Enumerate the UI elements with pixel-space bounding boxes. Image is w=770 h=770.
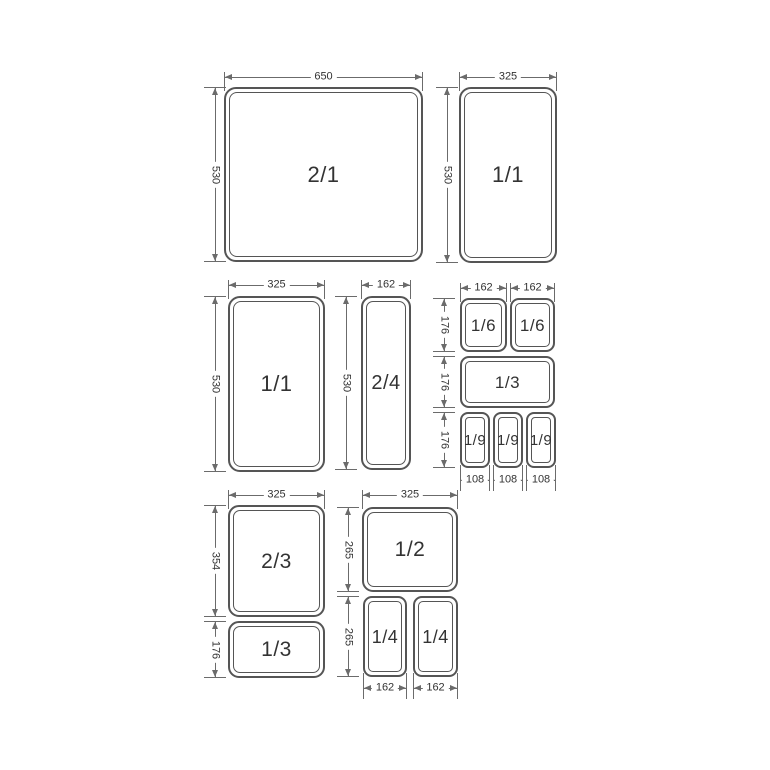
pan-size-label: 1/1 [492,164,524,186]
arrowhead-right-icon [549,74,556,80]
arrowhead-right-icon [403,282,410,288]
arrowhead-up-icon [212,506,218,513]
dimension-value: 176 [208,636,221,662]
pan-1-1-top: 1/1 [459,87,557,263]
arrowhead-left-icon [460,74,467,80]
pan-1-4-b: 1/4 [413,596,458,677]
pan-size-label: 1/3 [261,639,292,660]
dimension-value: 265 [341,623,354,649]
extension-tick [522,465,523,491]
arrowhead-up-icon [212,297,218,304]
arrowhead-up-icon [441,299,447,306]
dimension-value: 325 [263,278,289,291]
extension-tick [337,591,359,592]
extension-tick [335,469,357,470]
dimension-value: 108 [495,473,521,486]
arrowhead-left-icon [414,685,421,691]
pan-2-3: 2/3 [228,505,325,617]
arrowhead-left-icon [363,492,370,498]
pan-size-label: 1/1 [260,373,292,395]
pan-size-label: 1/9 [497,433,519,448]
dimension-value: 265 [341,536,354,562]
extension-tick [489,465,490,491]
dimension-value: 325 [495,70,521,83]
arrowhead-up-icon [441,357,447,364]
arrowhead-right-icon [317,282,324,288]
pan-size-label: 2/4 [371,373,400,393]
arrowhead-right-icon [415,74,422,80]
extension-tick [324,490,325,509]
arrowhead-right-icon [450,492,457,498]
pan-2-1: 2/1 [224,87,423,262]
pan-1-1-mid: 1/1 [228,296,325,472]
dimension-value: 176 [437,427,450,453]
pan-1-4-a: 1/4 [363,596,407,677]
pan-size-label: 2/1 [307,164,339,186]
extension-tick [204,677,226,678]
extension-tick [554,283,555,302]
dimension-value: 650 [310,70,336,83]
arrowhead-up-icon [444,88,450,95]
dimension-value: 530 [440,162,453,188]
pan-1-9-a: 1/9 [460,412,490,468]
extension-tick [433,351,455,352]
pan-size-label: 1/4 [372,628,399,646]
arrowhead-left-icon [229,492,236,498]
extension-tick [433,467,455,468]
pan-size-label: 1/3 [495,374,520,391]
arrowhead-up-icon [212,622,218,629]
pan-size-label: 1/6 [471,317,496,334]
arrowhead-down-icon [345,669,351,676]
arrowhead-down-icon [444,255,450,262]
arrowhead-right-icon [317,492,324,498]
dimension-value: 325 [397,488,423,501]
pan-1-6-a: 1/6 [460,298,507,352]
arrowhead-left-icon [229,282,236,288]
dimension-value: 354 [208,548,221,574]
arrowhead-right-icon [399,685,406,691]
arrowhead-right-icon [450,685,457,691]
extension-tick [410,280,411,299]
dimension-value: 162 [372,681,398,694]
extension-tick [406,673,407,699]
extension-tick [337,676,359,677]
arrowhead-down-icon [212,609,218,616]
arrowhead-down-icon [441,344,447,351]
pan-size-label: 2/3 [261,551,292,572]
pan-1-2: 1/2 [362,507,458,592]
arrowhead-down-icon [345,584,351,591]
extension-tick [506,283,507,302]
extension-tick [457,673,458,699]
dimension-value: 530 [208,371,221,397]
dimension-value: 162 [422,681,448,694]
arrowhead-up-icon [345,597,351,604]
extension-tick [324,280,325,299]
arrowhead-left-icon [225,74,232,80]
extension-tick [204,261,226,262]
pan-2-4: 2/4 [361,296,411,470]
pan-size-label: 1/9 [464,433,486,448]
dimension-value: 530 [208,161,221,187]
arrowhead-down-icon [441,460,447,467]
dimension-value: 108 [528,473,554,486]
pan-1-9-c: 1/9 [526,412,556,468]
arrowhead-right-icon [547,285,554,291]
extension-tick [555,465,556,491]
gastronorm-size-diagram: 6503253251621621621081081083253251621625… [0,0,770,770]
dimension-value: 176 [437,312,450,338]
dimension-value: 162 [373,278,399,291]
pan-1-6-b: 1/6 [510,298,555,352]
extension-tick [556,72,557,91]
arrowhead-left-icon [461,285,468,291]
arrowhead-right-icon [499,285,506,291]
arrowhead-down-icon [441,400,447,407]
pan-size-label: 1/9 [530,433,552,448]
dimension-value: 162 [519,281,545,294]
arrowhead-up-icon [441,413,447,420]
arrowhead-up-icon [212,88,218,95]
arrowhead-up-icon [343,297,349,304]
dimension-value: 162 [470,281,496,294]
extension-tick [457,490,458,509]
extension-tick [422,72,423,91]
arrowhead-left-icon [364,685,371,691]
extension-tick [436,262,458,263]
extension-tick [433,407,455,408]
arrowhead-up-icon [345,508,351,515]
pan-size-label: 1/6 [520,317,545,334]
arrowhead-down-icon [212,254,218,261]
dimension-value: 325 [263,488,289,501]
arrowhead-left-icon [511,285,518,291]
extension-tick [204,616,226,617]
dimension-value: 108 [462,473,488,486]
arrowhead-left-icon [362,282,369,288]
arrowhead-down-icon [343,462,349,469]
pan-size-label: 1/2 [395,539,426,560]
dimension-value: 176 [437,369,450,395]
pan-1-3-bottom: 1/3 [228,621,325,678]
extension-tick [204,471,226,472]
pan-1-3-group: 1/3 [460,356,555,408]
pan-size-label: 1/4 [422,628,449,646]
dimension-value: 530 [339,370,352,396]
arrowhead-down-icon [212,670,218,677]
arrowhead-down-icon [212,464,218,471]
pan-1-9-b: 1/9 [493,412,523,468]
